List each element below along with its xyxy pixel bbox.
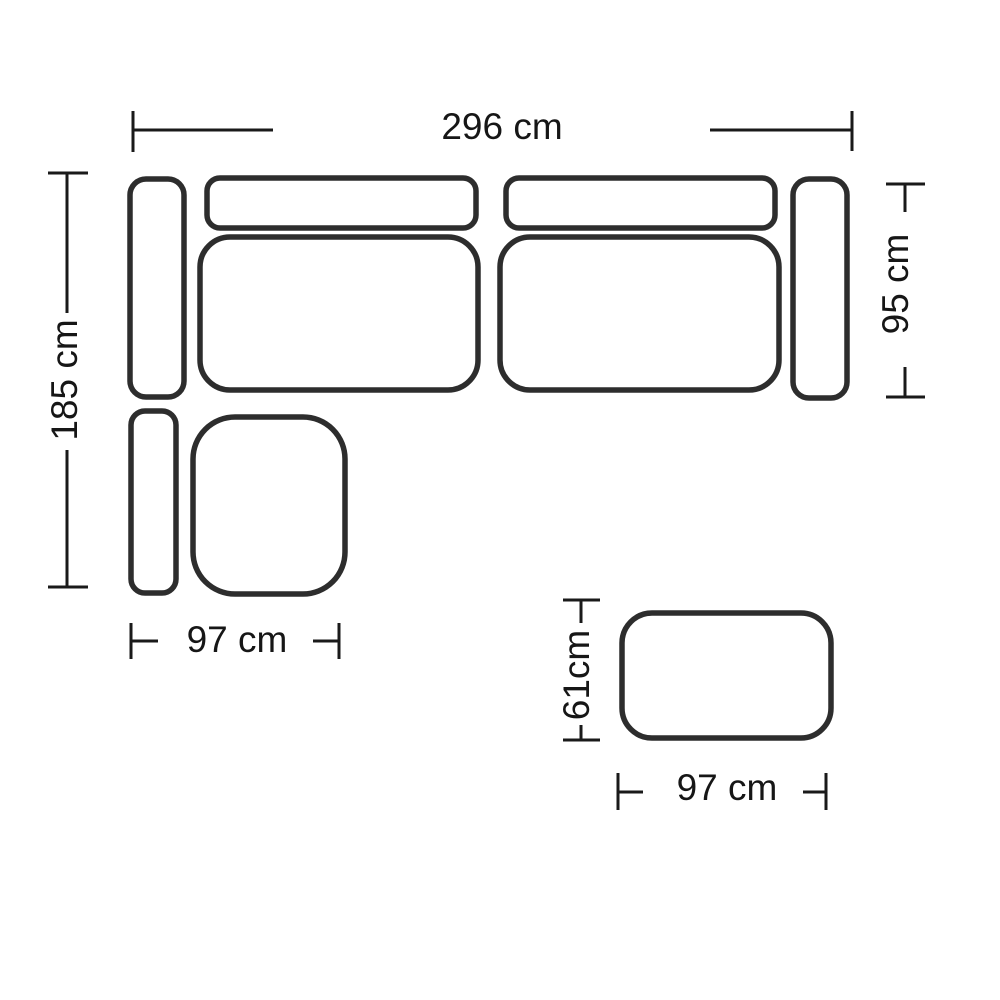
armrest-left-upper [130, 179, 184, 397]
backrest-left [207, 178, 476, 228]
dim-label-total-width: 296 cm [441, 106, 562, 147]
diagram-canvas: 296 cm 185 cm 95 cm [0, 0, 1000, 1000]
ottoman [622, 613, 831, 738]
dim-right-depth: 95 cm [875, 184, 925, 397]
backrest-right [506, 178, 775, 228]
corner-seat [193, 417, 345, 594]
dim-corner-width: 97 cm [131, 619, 339, 660]
dim-ottoman-width: 97 cm [618, 767, 826, 810]
dim-label-right-depth: 95 cm [875, 234, 916, 335]
sofa-dimension-diagram: 296 cm 185 cm 95 cm [0, 0, 1000, 1000]
dim-label-ottoman-depth: 61cm [556, 630, 597, 720]
dim-total-width: 296 cm [133, 106, 852, 152]
dim-label-corner-width: 97 cm [187, 619, 288, 660]
seat-right [500, 237, 779, 390]
dim-ottoman-depth: 61cm [556, 600, 600, 740]
seat-left [200, 237, 478, 390]
dim-label-left-depth: 185 cm [44, 319, 85, 440]
armrest-right [793, 179, 847, 398]
dim-left-depth: 185 cm [44, 173, 88, 587]
dim-label-ottoman-width: 97 cm [677, 767, 778, 808]
armrest-left-lower [131, 411, 176, 593]
